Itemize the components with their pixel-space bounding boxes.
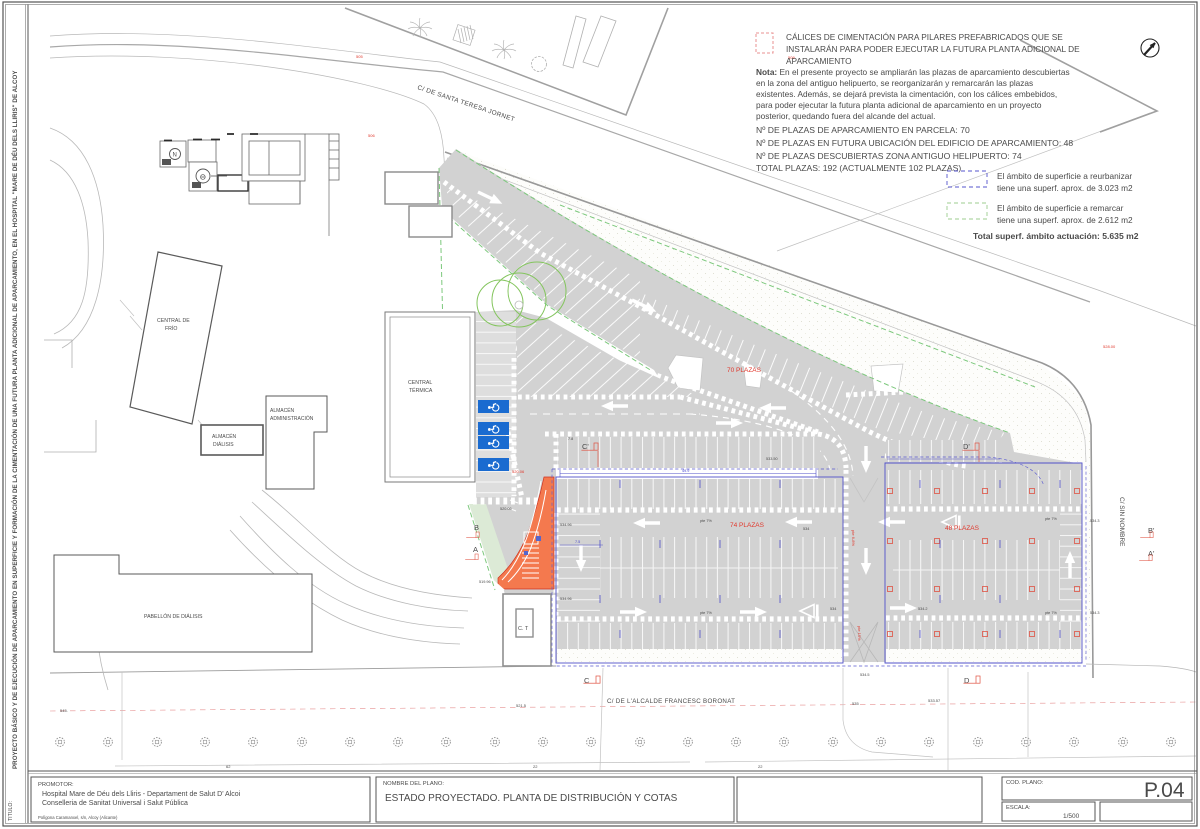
svg-text:534.5: 534.5	[860, 673, 870, 677]
svg-text:posterior, quedando fuera del: posterior, quedando fuera del alcande de…	[756, 111, 935, 121]
svg-text:A: A	[473, 545, 478, 554]
svg-text:tiene una superf. aprox. de 3.: tiene una superf. aprox. de 3.023 m2	[997, 183, 1133, 193]
svg-text:519.96: 519.96	[479, 580, 491, 584]
svg-text:NOMBRE DEL PLANO:: NOMBRE DEL PLANO:	[383, 781, 444, 787]
svg-text:ESTADO PROYECTADO. PLANTA DE D: ESTADO PROYECTADO. PLANTA DE DISTRIBUCIÓ…	[385, 791, 678, 804]
svg-text:B': B'	[1148, 526, 1155, 535]
svg-text:B: B	[474, 523, 479, 532]
svg-text:C. T: C. T	[518, 626, 529, 632]
svg-text:49.9: 49.9	[682, 469, 689, 473]
svg-text:ALMACÉN: ALMACÉN	[212, 433, 237, 440]
svg-text:pte 7%: pte 7%	[700, 611, 712, 615]
svg-text:22: 22	[533, 764, 538, 769]
svg-text:C/ DE L'ALCALDE FRANCESC BORO: C/ DE L'ALCALDE FRANCESC BORONAT	[607, 698, 735, 705]
svg-text:pte 7%: pte 7%	[700, 519, 712, 523]
svg-text:INSTALARÁN PARA PODER EJECUTAR: INSTALARÁN PARA PODER EJECUTAR LA FUTURA…	[786, 44, 1080, 54]
svg-text:Nº DE PLAZAS DESCUBIERTAS ZONA: Nº DE PLAZAS DESCUBIERTAS ZONA ANTIGUO H…	[756, 151, 1022, 161]
svg-text:DIÁLISIS: DIÁLISIS	[213, 441, 234, 448]
svg-text:pte 6-8%: pte 6-8%	[851, 530, 856, 546]
svg-text:⊖: ⊖	[200, 173, 207, 182]
svg-text:Nº DE PLAZAS DE APARCAMIENTO E: Nº DE PLAZAS DE APARCAMIENTO EN PARCELA:…	[756, 125, 970, 135]
svg-text:C': C'	[582, 442, 589, 451]
svg-text:521.5: 521.5	[516, 703, 527, 708]
svg-text:506: 506	[368, 133, 375, 138]
svg-text:62: 62	[226, 764, 231, 769]
svg-text:534.3: 534.3	[1090, 519, 1100, 523]
svg-text:CÁLICES DE CIMENTACIÓN PARA PI: CÁLICES DE CIMENTACIÓN PARA PILARES PREF…	[786, 32, 1063, 42]
svg-text:Nota: En el presente proyecto: Nota: En el presente proyecto se ampliar…	[756, 67, 1070, 77]
svg-text:Polígona Caramanxel, s/n, Alco: Polígona Caramanxel, s/n, Alcoy (Alicant…	[38, 815, 118, 820]
svg-text:para poder ejecutar la futura: para poder ejecutar la futura planta adi…	[756, 100, 1042, 110]
svg-text:COD. PLANO:: COD. PLANO:	[1006, 780, 1044, 786]
svg-text:534: 534	[803, 527, 809, 531]
svg-text:existentes. Además, se dejará: existentes. Además, se dejará prevista l…	[756, 89, 1057, 99]
svg-text:534.96: 534.96	[560, 523, 572, 527]
svg-text:P.04: P.04	[1144, 779, 1185, 802]
svg-text:7.5: 7.5	[575, 540, 580, 544]
svg-text:pte 15%: pte 15%	[857, 626, 862, 641]
svg-text:ALMACÉN: ALMACÉN	[270, 407, 295, 414]
svg-text:528.00: 528.00	[1103, 344, 1116, 349]
svg-text:534: 534	[830, 607, 836, 611]
svg-text:CENTRAL DE: CENTRAL DE	[157, 318, 190, 324]
svg-text:D: D	[964, 676, 970, 685]
svg-text:Conselleria de Sanitat Univers: Conselleria de Sanitat Universal i Salut…	[42, 800, 188, 807]
svg-text:520.06: 520.06	[512, 469, 525, 474]
svg-text:534.3: 534.3	[1090, 611, 1100, 615]
svg-text:FRÍO: FRÍO	[165, 325, 177, 332]
svg-text:ESCALA:: ESCALA:	[1006, 805, 1031, 811]
svg-text:pte 7%: pte 7%	[1045, 517, 1057, 521]
svg-text:533.57: 533.57	[928, 698, 941, 703]
svg-text:pte 7%: pte 7%	[1045, 611, 1057, 615]
svg-text:534.96: 534.96	[560, 597, 572, 601]
svg-text:Hospital Mare de Déu dels Llir: Hospital Mare de Déu dels Lliris - Depar…	[42, 791, 241, 798]
svg-text:ADMINISTRACIÓN: ADMINISTRACIÓN	[270, 415, 314, 422]
svg-text:534.2: 534.2	[918, 607, 928, 611]
svg-text:C: C	[584, 676, 590, 685]
svg-text:545.: 545.	[60, 708, 68, 713]
svg-text:1/500: 1/500	[1063, 813, 1080, 820]
svg-text:74 PLAZAS: 74 PLAZAS	[730, 522, 765, 529]
svg-text:N: N	[173, 153, 177, 159]
svg-text:D': D'	[963, 442, 970, 451]
svg-text:El ámbito de superficie a rema: El ámbito de superficie a remarcar	[997, 203, 1124, 213]
svg-text:533.50: 533.50	[766, 457, 778, 461]
svg-text:22: 22	[758, 764, 763, 769]
svg-text:Nº DE PLAZAS EN FUTURA UBICACI: Nº DE PLAZAS EN FUTURA UBICACIÓN DEL EDI…	[756, 138, 1073, 148]
svg-text:PROYECTO BÁSICO Y DE EJECUCIÓN: PROYECTO BÁSICO Y DE EJECUCIÓN DE APARCA…	[11, 70, 19, 769]
svg-text:tiene una superf. aprox. de 2.: tiene una superf. aprox. de 2.612 m2	[997, 215, 1133, 225]
svg-text:C/ SIN NOMBRE: C/ SIN NOMBRE	[1118, 497, 1125, 547]
svg-text:TOTAL PLAZAS: 192 (ACTUALMENTE: TOTAL PLAZAS: 192 (ACTUALMENTE 102 PLAZA…	[756, 163, 961, 173]
svg-text:70 PLAZAS: 70 PLAZAS	[727, 367, 762, 374]
svg-text:en la zona del antiguo helipue: en la zona del antiguo helipuerto, se re…	[756, 78, 1033, 88]
svg-text:TITULO:: TITULO:	[8, 801, 14, 821]
svg-text:48 PLAZAS: 48 PLAZAS	[945, 525, 980, 532]
svg-text:520.06: 520.06	[500, 507, 512, 511]
svg-text:El ámbito de superficie a reur: El ámbito de superficie a reurbanizar	[997, 171, 1132, 181]
svg-text:Total superf. ámbito actuación: Total superf. ámbito actuación: 5.635 m2	[973, 231, 1139, 241]
svg-text:CENTRAL: CENTRAL	[408, 380, 432, 386]
svg-text:PROMOTOR:: PROMOTOR:	[38, 782, 74, 788]
svg-text:505: 505	[356, 54, 363, 59]
svg-text:535: 535	[852, 701, 859, 706]
svg-text:TÉRMICA: TÉRMICA	[409, 387, 433, 394]
svg-text:7.8: 7.8	[568, 437, 573, 441]
svg-text:PABELLÓN DE DIÁLISIS: PABELLÓN DE DIÁLISIS	[144, 613, 203, 620]
svg-text:APARCAMIENTO: APARCAMIENTO	[786, 56, 852, 66]
